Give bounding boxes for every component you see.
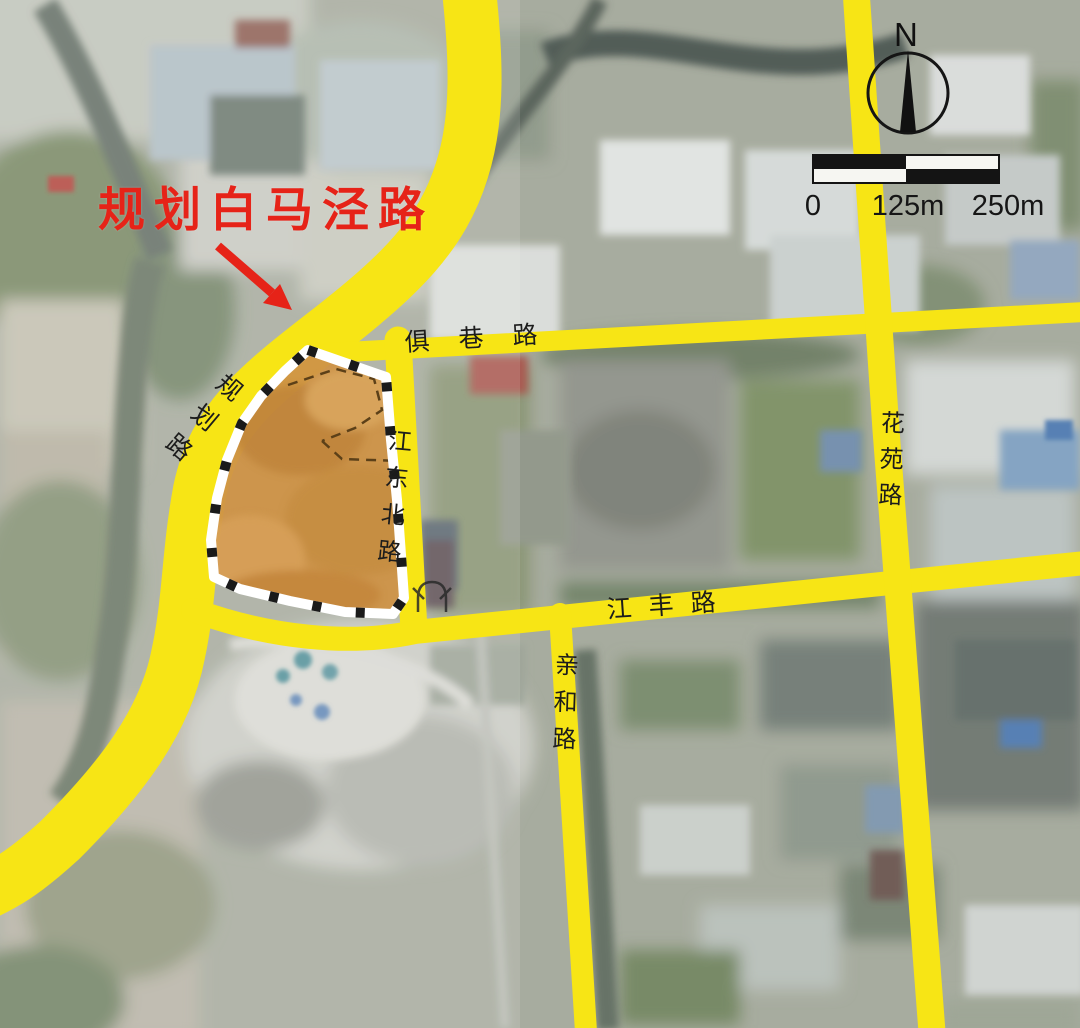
scale-label-0: 0 <box>800 190 826 223</box>
scale-label-250: 250m <box>956 190 1060 223</box>
huayuan-road-label: 花苑路 <box>874 410 902 519</box>
scale-cell <box>906 169 998 182</box>
north-label: N <box>894 16 918 54</box>
scale-cell <box>814 156 906 169</box>
planning-map: 规划白马泾路 规划路 俱巷路 江东北路 花苑路 江丰路 亲和路 N 0 125m… <box>0 0 1080 1028</box>
scale-cell <box>814 169 906 182</box>
compass: N <box>858 16 968 146</box>
scale-bar <box>812 154 1000 184</box>
scale-cell <box>906 156 998 169</box>
scale-label-125: 125m <box>862 190 954 223</box>
planned-road-annotation: 规划白马泾路 <box>98 186 434 233</box>
qinhe-road-label: 亲和路 <box>548 652 576 764</box>
